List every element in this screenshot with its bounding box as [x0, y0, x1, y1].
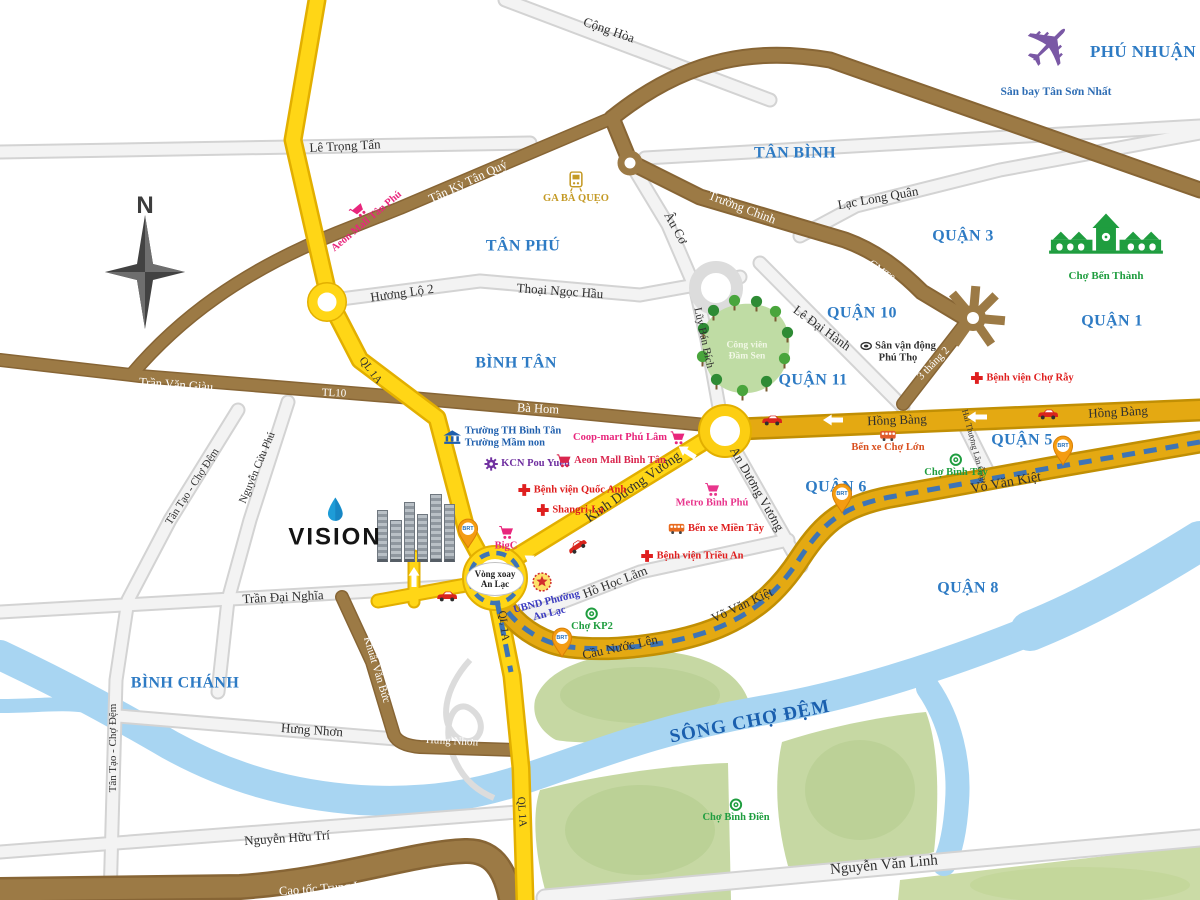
factory-gear-icon [484, 457, 498, 471]
district-label-tan-binh: TÂN BÌNH [754, 146, 836, 163]
poi-ga-ba-queo: GA BÀ QUẸO [543, 171, 609, 205]
market-ring-icon [585, 607, 598, 620]
district-label-binh-tan: BÌNH TÂN [475, 356, 557, 373]
road-label-ql1a-3: QL 1A [514, 796, 528, 827]
compass-rose-icon [105, 215, 185, 329]
map-pin-icon [831, 483, 854, 514]
yellow-highways [293, 0, 703, 900]
car-icon [1037, 408, 1059, 420]
road-cao-toc-trung-luong [0, 851, 511, 900]
vong-xoay-an-lac-badge: Vòng xoay An Lạc [466, 562, 524, 596]
shopping-cart-icon [556, 454, 571, 468]
district-label-quan-10: QUẬN 10 [827, 306, 897, 323]
hospital-cross-icon [641, 550, 654, 563]
map-pin-icon [1052, 435, 1075, 466]
poi-coop-mart-phu-lam: Coop-mart Phú Lâm [573, 431, 685, 445]
district-label-quan-8: QUẬN 8 [937, 581, 999, 598]
poi-truong-binh-tan: Trường TH Bình Tân Trường Mầm non [443, 425, 561, 448]
road-label-tl10: TL10 [322, 388, 347, 400]
poi-ben-xe-cho-lon: Bến xe Chợ Lớn [851, 430, 924, 454]
road-label-ql1a-2: QL 1A [495, 610, 510, 642]
direction-arrow-icon [409, 567, 420, 587]
market-ring-icon [730, 798, 743, 811]
train-station-icon [568, 171, 584, 192]
district-label-phu-nhuan: PHÚ NHUẬN [1090, 43, 1196, 61]
brt-station-pin: BRT [831, 483, 854, 514]
district-label-binh-chanh: BÌNH CHÁNH [131, 676, 239, 693]
brt-station-pin: BRT [551, 627, 574, 658]
map-canvas: Lê Trọng Tấn Cộng Hòa Tân Kỳ Tân Quý Trư… [0, 0, 1200, 900]
hospital-cross-icon [518, 484, 531, 497]
direction-arrow-icon [967, 412, 987, 423]
poi-aeon-mall-binh-tan: Aeon Mall Bình Tân [556, 454, 666, 468]
ubnd-star-icon [531, 571, 553, 593]
road-label-hong-bang-1: Hồng Bàng [867, 412, 927, 428]
poi-benh-vien-quoc-anh: Bệnh viện Quốc Anh [518, 484, 627, 497]
bus-icon [880, 430, 897, 441]
map-pin-icon [551, 627, 574, 658]
poi-label-cho-ben-thanh: Chợ Bến Thành [1069, 271, 1144, 283]
district-label-quan-11: QUẬN 11 [778, 373, 847, 390]
district-label-quan-5: QUẬN 5 [991, 433, 1053, 450]
district-label-quan-3: QUẬN 3 [932, 229, 994, 246]
brt-station-pin: BRT [1052, 435, 1075, 466]
car-icon [436, 590, 458, 602]
district-label-tan-phu: TÂN PHÚ [486, 239, 560, 256]
poi-benh-vien-cho-ray: Bệnh viện Chợ Rẫy [970, 372, 1073, 385]
shopping-cart-icon [704, 483, 719, 497]
poi-san-van-dong-phu-tho: Sân vận động Phú Thọ [860, 340, 936, 363]
stadium-icon [860, 342, 872, 351]
poi-cho-kp2: Chợ KP2 [571, 607, 613, 633]
school-icon [443, 430, 462, 445]
poi-cho-binh-dien: Chợ Bình Điền [702, 798, 769, 824]
ben-thanh-market-icon [1047, 209, 1165, 265]
ql1a-roundabout [313, 288, 341, 316]
hospital-cross-icon [970, 372, 983, 385]
ba-queo-roundabout [621, 154, 639, 172]
poi-label-san-bay-tan-son-nhat: Sân bay Tân Sơn Nhất [1001, 86, 1112, 98]
market-ring-icon [950, 453, 963, 466]
poi-big-c: BigC [495, 526, 518, 553]
road-cong-hoa [505, 0, 770, 100]
vision-towers [377, 496, 455, 562]
road-khuat-van-buc [342, 597, 516, 750]
poi-cong-vien-dam-sen: Công viên Đầm Sen [727, 341, 768, 364]
brt-station-pin: BRT [457, 518, 480, 549]
hospital-cross-icon [536, 504, 549, 517]
poi-benh-vien-trieu-an: Bệnh viện Triều An [641, 550, 744, 563]
road-label-ba-hom: Bà Hom [517, 401, 560, 416]
district-label-quan-1: QUẬN 1 [1081, 314, 1143, 331]
map-pin-icon [457, 518, 480, 549]
poi-metro-binh-phu: Metro Bình Phú [676, 483, 749, 510]
water-drop-icon [326, 497, 344, 522]
map-graphics [0, 0, 1200, 900]
bus-icon [668, 523, 685, 534]
poi-cho-binh-tay: Chợ Bình Tây [924, 453, 987, 479]
road-label-hong-bang-2: Hồng Bàng [1088, 404, 1148, 421]
poi-ben-xe-mien-tay: Bến xe Miền Tây [668, 523, 764, 535]
vision-logo: VISION [288, 497, 381, 552]
shopping-cart-icon [498, 526, 513, 540]
poi-shangri-la: Shangri-La [536, 504, 603, 517]
direction-arrow-icon [823, 415, 843, 426]
road-tran-van-giau-ba-hom [0, 360, 706, 425]
road-label-tan-tao-cho-dem-2: Tân Tạo - Chợ Đệm [108, 704, 120, 793]
car-icon [761, 414, 783, 426]
compass-north-label: N [136, 192, 153, 220]
